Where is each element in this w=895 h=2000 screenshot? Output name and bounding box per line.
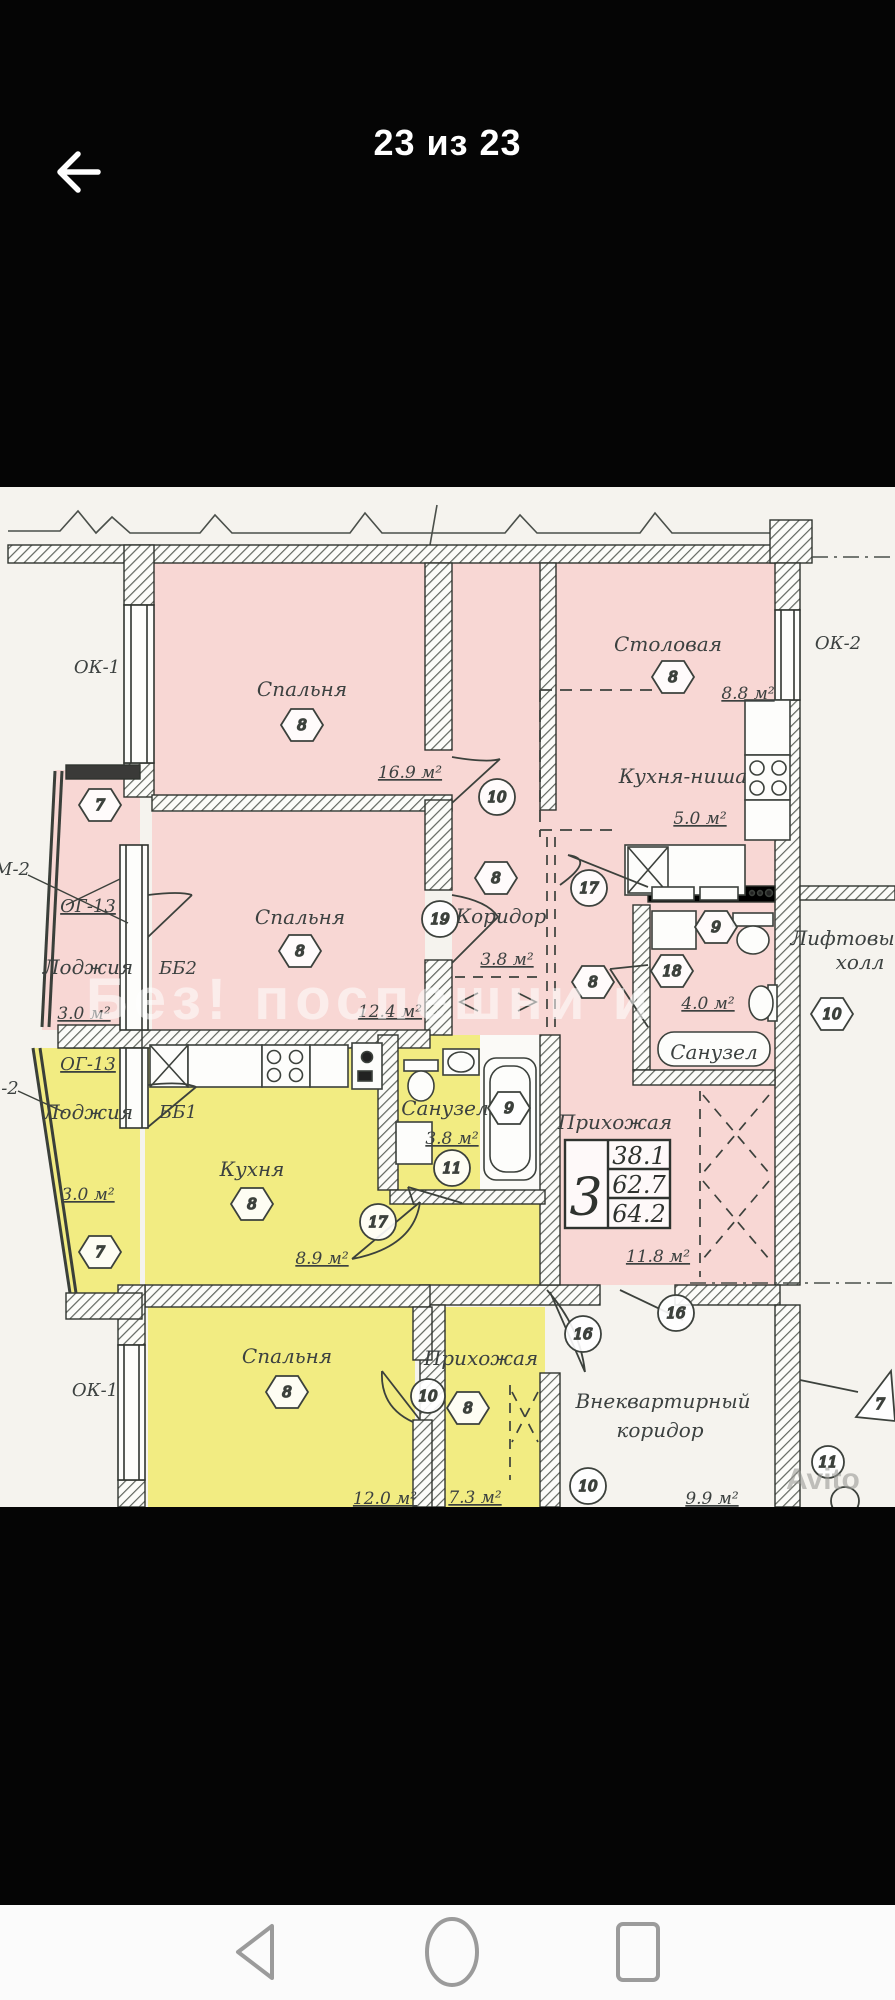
svg-text:7: 7: [95, 1243, 105, 1261]
nav-recents-button[interactable]: [618, 1924, 658, 1980]
room-area-entry-hall2: 7.3 м²: [448, 1488, 502, 1507]
nav-back-icon: [238, 1926, 272, 1978]
marker-door10-top: 10: [479, 779, 515, 815]
marker-bathroom2-door: 11: [434, 1150, 470, 1186]
room-name-bedroom3: Спальня: [242, 1344, 332, 1368]
marker-door16-b: 16: [565, 1316, 601, 1352]
svg-text:7: 7: [95, 796, 105, 814]
svg-text:10: 10: [578, 1477, 598, 1495]
marker-lift-hall: 10: [811, 998, 853, 1030]
marker-entry-hall2-a: 10: [411, 1379, 445, 1413]
room-area-outer-corridor: 9.9 м²: [685, 1489, 739, 1507]
room-name-kitchen-niche: Кухня-ниша: [618, 764, 747, 788]
svg-text:8: 8: [491, 869, 501, 887]
marker-door16-a: 16: [658, 1295, 694, 1331]
window-label-ok1-top: ОК-1: [74, 657, 120, 678]
marker-outer-corridor: 10: [570, 1468, 606, 1504]
watermark-text: Без! поспешни и: [86, 967, 654, 1032]
room-name-dining: Столовая: [614, 632, 722, 656]
marker-loggia-bottom: 7: [79, 1236, 121, 1268]
stamp-rooms-count: 3: [569, 1168, 602, 1228]
gallery-header: 23 из 23: [0, 0, 895, 220]
room-name-lift-hall-2: холл: [836, 950, 885, 974]
svg-text:10: 10: [487, 788, 507, 806]
room-name-bathroom1: Санузел: [670, 1040, 757, 1064]
svg-text:17: 17: [368, 1213, 388, 1231]
svg-text:8: 8: [282, 1383, 292, 1401]
marker-loggia-top: 7: [79, 789, 121, 821]
svg-text:17: 17: [579, 879, 599, 897]
svg-text:16: 16: [666, 1304, 686, 1322]
floorplan-photo[interactable]: ОК-1 ОК-2 М-2 -2 ОГ-13 ОГ-13 ББ2 ББ1 ОК-…: [0, 487, 895, 1507]
window-label-og13-top: ОГ-13: [60, 896, 116, 917]
room-name-bathroom2: Санузел: [401, 1096, 488, 1120]
svg-text:8: 8: [668, 668, 678, 686]
room-name-loggia-bottom: Лоджия: [42, 1100, 133, 1124]
svg-text:18: 18: [662, 962, 681, 980]
svg-text:8: 8: [297, 716, 307, 734]
stamp-full-area: 64.2: [612, 1200, 665, 1228]
marker-bathroom1-a: 9: [695, 911, 737, 943]
stamp-living-area: 38.1: [612, 1142, 665, 1170]
marker-bedroom3: 8: [266, 1376, 308, 1408]
room-name-entry-hall2: Прихожая: [423, 1346, 538, 1370]
marker-door17-kitchen: 17: [360, 1204, 396, 1240]
room-area-kitchen: 8.9 м²: [295, 1249, 349, 1269]
window-label-og13-bottom: ОГ-13: [60, 1054, 116, 1075]
room-name-corridor: Коридор: [455, 904, 547, 928]
room-area-kitchen-niche: 5.0 м²: [673, 809, 727, 829]
photo-counter: 23 из 23: [0, 122, 895, 164]
phone-screen: 23 из 23: [0, 0, 895, 2000]
window-label-ok1-bottom: ОК-1: [72, 1380, 118, 1401]
svg-text:10: 10: [418, 1387, 438, 1405]
marker-kitchen: 8: [231, 1188, 273, 1220]
room-area-dining: 8.8 м²: [721, 684, 775, 704]
svg-text:8: 8: [247, 1195, 257, 1213]
room-area-loggia-bottom: 3.0 м²: [61, 1185, 115, 1205]
room-area-bedroom3: 12.0 м²: [353, 1489, 417, 1507]
room-name-bedroom1: Спальня: [257, 677, 347, 701]
svg-text:19: 19: [430, 910, 450, 928]
room-name-kitchen: Кухня: [219, 1157, 285, 1181]
nav-back-button[interactable]: [238, 1926, 272, 1978]
apartment-stamp: 3 38.1 62.7 64.2: [565, 1140, 670, 1228]
svg-text:9: 9: [504, 1099, 514, 1117]
room-name-outer-corridor-1: Внеквартирный: [574, 1389, 750, 1413]
marker-door19: 19: [422, 901, 458, 937]
nav-home-icon: [427, 1919, 477, 1985]
marker-corridor: 8: [475, 862, 517, 894]
marker-bathroom1-b: 18: [651, 955, 693, 987]
svg-text:7: 7: [875, 1395, 885, 1413]
door-label-bb1: ББ1: [158, 1102, 197, 1123]
nav-home-button[interactable]: [427, 1919, 477, 1985]
window-label-ok2: ОК-2: [815, 633, 861, 654]
stamp-total-area: 62.7: [612, 1171, 666, 1199]
svg-text:8: 8: [463, 1399, 473, 1417]
svg-text:16: 16: [573, 1325, 593, 1343]
brand-watermark: Avito: [786, 1463, 860, 1496]
marker-bathroom2-tub: 9: [488, 1092, 530, 1124]
room-area-bedroom1: 16.9 м²: [378, 763, 442, 783]
room-name-bedroom2: Спальня: [255, 905, 345, 929]
marker-dining: 8: [652, 661, 694, 693]
marker-entry-hall2-b: 8: [447, 1392, 489, 1424]
room-area-bathroom1: 4.0 м²: [680, 994, 735, 1014]
svg-text:8: 8: [295, 942, 305, 960]
svg-text:9: 9: [711, 918, 721, 936]
room-area-bathroom2: 3.8 м²: [425, 1129, 479, 1149]
marker-bedroom2: 8: [279, 935, 321, 967]
marker-bedroom1: 8: [281, 709, 323, 741]
room-area-entry-hall: 11.8 м²: [626, 1247, 690, 1267]
room-name-lift-hall-1: Лифтовый: [789, 926, 895, 950]
panel-label-m2-bottom: -2: [1, 1078, 19, 1099]
svg-text:11: 11: [442, 1159, 461, 1177]
room-name-entry-hall: Прихожая: [557, 1110, 672, 1134]
marker-door17-top: 17: [571, 870, 607, 906]
svg-text:10: 10: [822, 1005, 842, 1023]
nav-recents-icon: [618, 1924, 658, 1980]
android-navbar: [0, 1905, 895, 2000]
room-name-outer-corridor-2: коридор: [616, 1418, 703, 1442]
panel-label-m2-top: М-2: [0, 859, 30, 880]
